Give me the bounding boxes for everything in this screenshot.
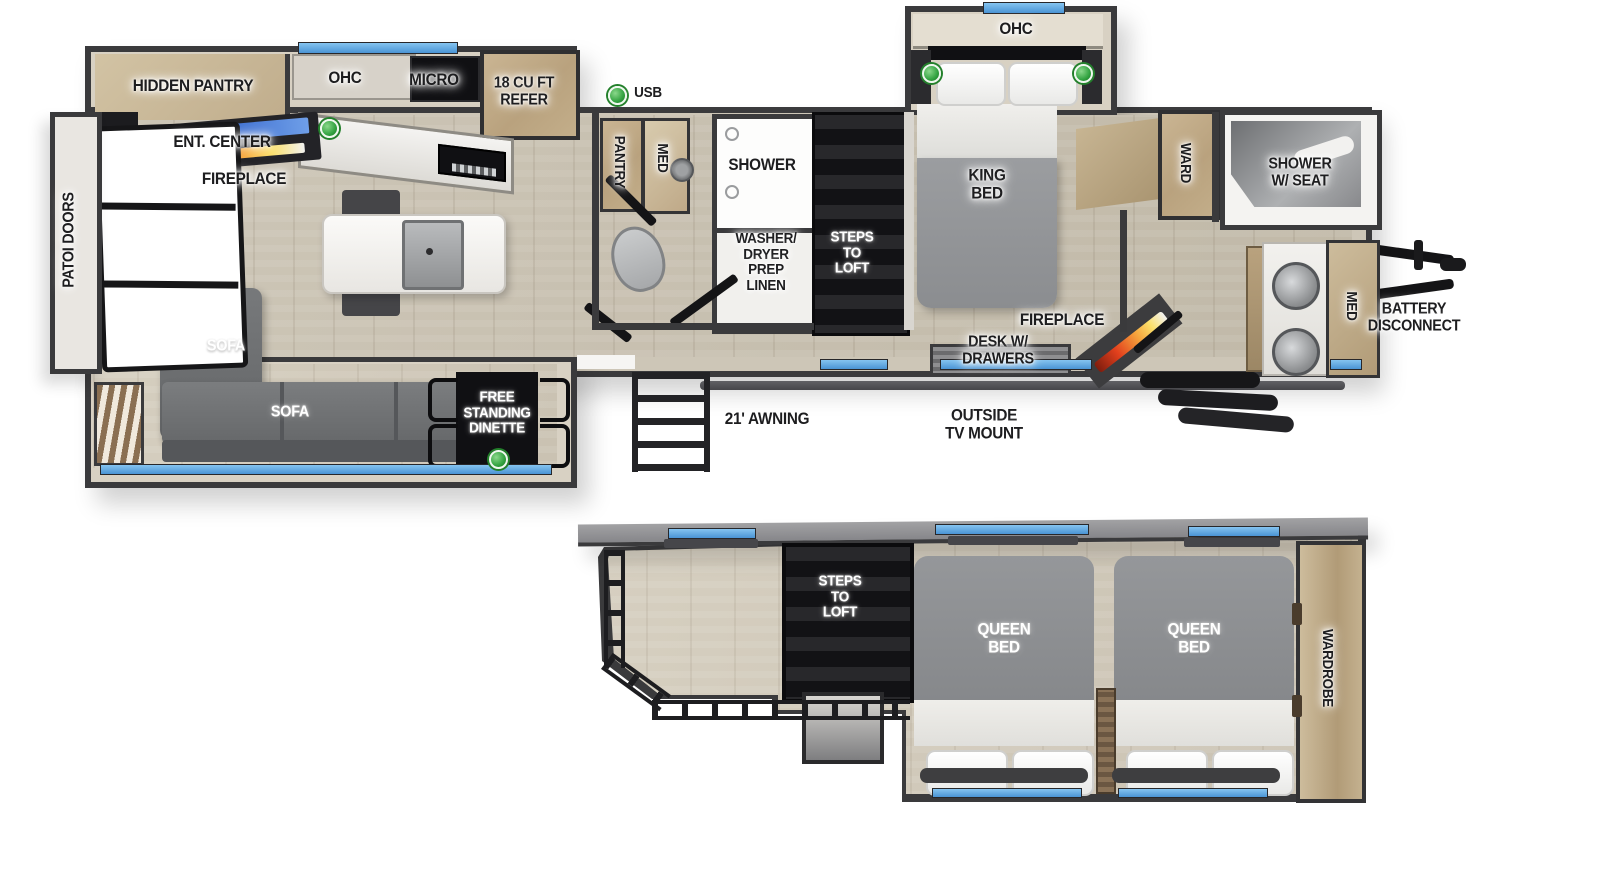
label-desk: DESK W/ DRAWERS <box>962 334 1034 367</box>
usb-dot-dinette <box>489 450 508 469</box>
label-battery-disconnect: BATTERY DISCONNECT <box>1368 301 1461 334</box>
label-shower-seat: SHOWER W/ SEAT <box>1268 156 1331 189</box>
entry-step-ladder <box>632 372 710 472</box>
label-med-front: MED <box>1343 291 1359 320</box>
loft-railing-bottom <box>652 700 910 720</box>
window-below-steps <box>820 359 888 370</box>
usb-dot-kitchen <box>320 119 339 138</box>
label-pantry: PANTRY <box>611 136 627 188</box>
vanity-sink-top <box>1272 262 1320 310</box>
king-bed-sheet <box>917 104 1057 160</box>
label-steps-loft: STEPS TO LOFT <box>819 574 862 621</box>
bedroom-slide-window <box>983 2 1065 14</box>
wardrobe-handle <box>1292 695 1302 717</box>
headboard <box>928 46 1086 60</box>
label-hidden-pantry: HIDDEN PANTRY <box>133 77 254 95</box>
king-pillow-left <box>936 62 1006 106</box>
label-tv-mount: OUTSIDE TV MOUNT <box>945 406 1023 441</box>
front-steps-1 <box>1140 372 1260 388</box>
usb-dot-exterior <box>608 86 627 105</box>
label-washer-dryer: WASHER/ DRYER PREP LINEN <box>735 231 796 293</box>
hitch-jack <box>1414 240 1423 270</box>
label-awning: 21' AWNING <box>725 410 810 428</box>
dinette-chair <box>428 424 458 468</box>
queen-right-sheet <box>1114 700 1294 746</box>
dinette-chair <box>540 378 570 422</box>
dinette-chair <box>540 424 570 468</box>
loft-window-shade <box>1184 538 1280 547</box>
hitch-coupler <box>1440 258 1466 271</box>
label-steps-main: STEPS TO LOFT <box>831 230 874 277</box>
label-refer: 18 CU FT REFER <box>494 75 554 108</box>
label-sofa-main: SOFA <box>271 405 309 422</box>
label-queen-left: QUEEN BED <box>977 620 1030 655</box>
label-ward: WARD <box>1177 143 1193 183</box>
label-ohc-bedroom: OHC <box>999 20 1032 38</box>
loft-window-mid <box>935 524 1089 535</box>
loft-window-shade <box>664 539 758 548</box>
patio-door-divider <box>100 203 236 211</box>
sofa-slide-window <box>100 464 552 475</box>
shower-head-dot <box>725 185 739 199</box>
bed-left-bolster <box>920 768 1088 783</box>
label-sofa-chaise: SOFA <box>207 339 245 356</box>
loft-railing-left <box>604 550 625 668</box>
loft-bottom-window-right <box>1118 788 1268 798</box>
label-micro: MICRO <box>409 71 459 89</box>
island-sink <box>402 220 464 290</box>
kitchen-slide-window <box>298 42 458 54</box>
dinette-chair <box>428 378 458 422</box>
entry-door-opening <box>577 355 635 369</box>
bath-wall-bottom <box>592 323 814 330</box>
steps-side-rail <box>904 112 914 330</box>
label-shower: SHOWER <box>728 156 795 174</box>
bedroom-dresser <box>1076 118 1160 210</box>
patio-doors-panel <box>94 122 248 373</box>
magazine-rack <box>94 382 144 466</box>
bath-sink-mid <box>670 158 694 182</box>
window-front <box>1330 359 1362 370</box>
loft-window-right <box>1188 526 1280 537</box>
label-med-bath: MED <box>654 143 670 172</box>
loft-bottom-window-left <box>932 788 1082 798</box>
bedroom-hall-wall <box>1120 210 1127 332</box>
usb-dot-bed-right <box>1074 64 1093 83</box>
queen-left-sheet <box>914 700 1094 746</box>
shower-head-dot <box>725 127 739 141</box>
shower-room <box>712 114 818 236</box>
sink-drain <box>426 248 433 255</box>
loft-window-left <box>668 528 756 539</box>
label-ent-center: ENT. CENTER <box>173 133 270 151</box>
wardrobe-handle <box>1292 603 1302 625</box>
label-wardrobe: WARDROBE <box>1319 629 1335 707</box>
label-king-bed: KING BED <box>968 166 1005 201</box>
steps-to-loft-loft <box>782 543 914 703</box>
label-fireplace-bedroom: FIREPLACE <box>1020 311 1104 329</box>
bath-wall-left <box>592 112 599 330</box>
sofa-cushion-divider <box>394 382 398 444</box>
steps-to-loft-main <box>812 112 910 336</box>
loft-window-shade <box>948 536 1078 545</box>
usb-dot-bed-left <box>922 64 941 83</box>
patio-door-divider <box>102 280 238 288</box>
label-dinette: FREE STANDING DINETTE <box>463 390 530 437</box>
label-patio-doors: PATOI DOORS <box>62 192 79 287</box>
label-ohc-kitchen: OHC <box>328 69 361 87</box>
floorplan-canvas: PATOI DOORS HIDDEN PANTRY ENT. CENTER FI… <box>0 0 1600 875</box>
bed-right-bolster <box>1112 768 1280 783</box>
label-fireplace-living: FIREPLACE <box>202 170 286 188</box>
front-bath-wall <box>1212 112 1219 222</box>
label-queen-right: QUEEN BED <box>1167 620 1220 655</box>
vanity-sink-bottom <box>1272 328 1320 376</box>
label-usb: USB <box>634 85 662 101</box>
king-pillow-right <box>1008 62 1078 106</box>
